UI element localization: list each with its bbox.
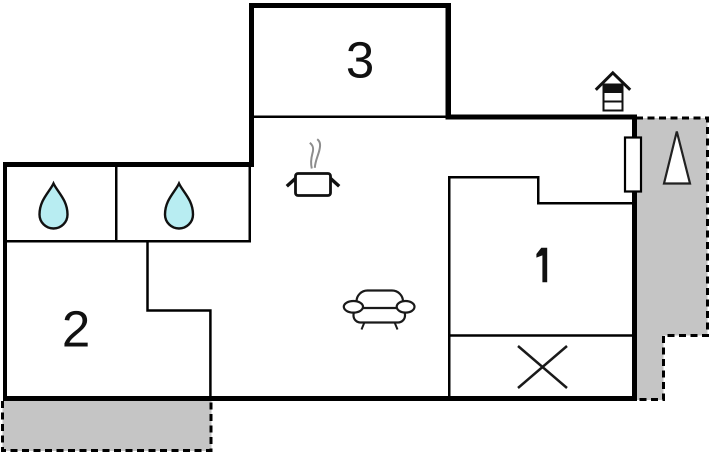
svg-text:2: 2 bbox=[62, 300, 90, 357]
svg-text:3: 3 bbox=[346, 32, 374, 89]
